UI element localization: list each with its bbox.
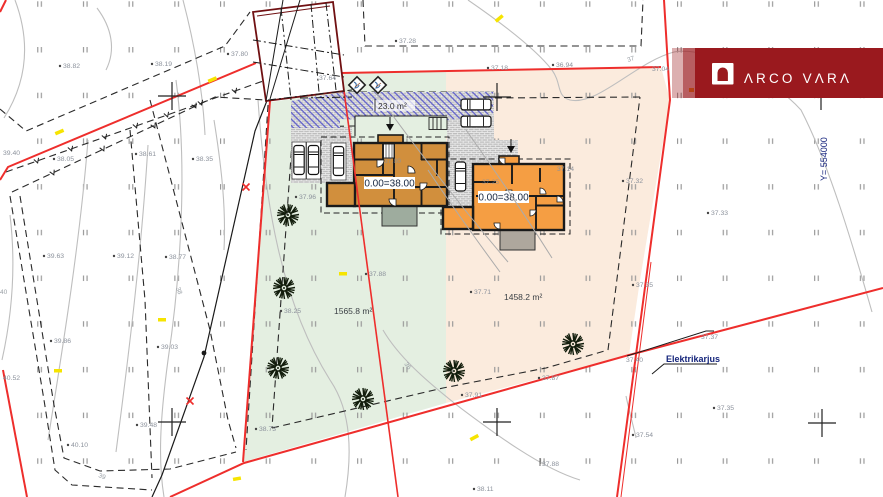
svg-text:39.86: 39.86 — [54, 338, 71, 345]
svg-text:38.73: 38.73 — [259, 426, 276, 433]
svg-text:39.03: 39.03 — [161, 344, 178, 351]
svg-text:Y= 554000: Y= 554000 — [819, 137, 829, 181]
svg-text:37.64: 37.64 — [319, 75, 336, 82]
svg-text:1565.8 m²: 1565.8 m² — [334, 306, 372, 316]
svg-text:38.61: 38.61 — [139, 151, 156, 158]
svg-text:38.05: 38.05 — [57, 156, 74, 163]
svg-text:37.04: 37.04 — [652, 66, 669, 73]
svg-text:37.18: 37.18 — [491, 65, 508, 72]
svg-text:39.12: 39.12 — [117, 253, 134, 260]
svg-text:39.63: 39.63 — [47, 253, 64, 260]
svg-text:38.19: 38.19 — [155, 61, 172, 68]
svg-text:36.94: 36.94 — [556, 62, 573, 69]
svg-text:37.71: 37.71 — [474, 289, 491, 296]
svg-text:ΛRCO VΛRΛ: ΛRCO VΛRΛ — [744, 71, 852, 86]
svg-text:37.33: 37.33 — [711, 210, 728, 217]
svg-text:37.80: 37.80 — [384, 158, 401, 165]
svg-text:38.11: 38.11 — [477, 486, 494, 493]
svg-text:37.88: 37.88 — [542, 461, 559, 468]
svg-text:40: 40 — [0, 289, 8, 296]
svg-text:37.37: 37.37 — [701, 334, 718, 341]
svg-text:37.35: 37.35 — [636, 282, 653, 289]
svg-text:40.10: 40.10 — [71, 442, 88, 449]
svg-text:38.82: 38.82 — [63, 63, 80, 70]
svg-text:37.96: 37.96 — [299, 194, 316, 201]
svg-text:40.52: 40.52 — [3, 375, 20, 382]
svg-text:37.88: 37.88 — [369, 271, 386, 278]
svg-text:37.14: 37.14 — [557, 166, 574, 173]
svg-text:0.00=38.00: 0.00=38.00 — [364, 179, 415, 190]
svg-text:38.35: 38.35 — [196, 156, 213, 163]
svg-text:39.48: 39.48 — [140, 422, 157, 429]
svg-text:Elektrikarjus: Elektrikarjus — [666, 354, 720, 364]
svg-text:37.35: 37.35 — [717, 405, 734, 412]
svg-text:37.54: 37.54 — [636, 432, 653, 439]
svg-text:37.32: 37.32 — [626, 178, 643, 185]
svg-text:1458.2 m²: 1458.2 m² — [504, 292, 542, 302]
svg-text:38.25: 38.25 — [284, 308, 301, 315]
svg-text:39.40: 39.40 — [3, 150, 20, 157]
svg-text:0.00=38.00: 0.00=38.00 — [478, 193, 529, 204]
svg-text:37.28: 37.28 — [399, 38, 416, 45]
svg-text:23.0 m²: 23.0 m² — [378, 101, 407, 111]
svg-text:38.77: 38.77 — [169, 254, 186, 261]
svg-text:37.40: 37.40 — [626, 357, 643, 364]
svg-text:37.80: 37.80 — [231, 51, 248, 58]
svg-text:37.87: 37.87 — [542, 375, 559, 382]
svg-text:37.91: 37.91 — [465, 392, 482, 399]
svg-text:37.25: 37.25 — [482, 179, 499, 186]
